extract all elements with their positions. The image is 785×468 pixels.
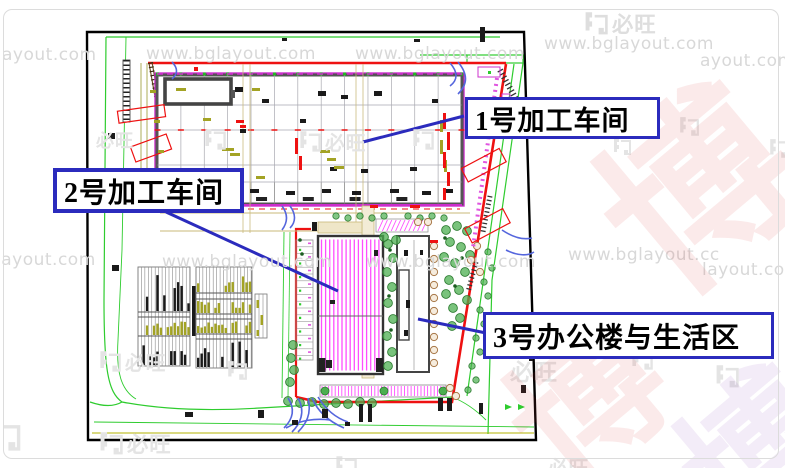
callout-label-workshop-1: 1号加工车间 [465, 97, 660, 139]
bg-logo-watermark: 必旺 [298, 127, 366, 156]
bg-logo-watermark [714, 364, 740, 390]
callout-label-3-text: 3号办公楼与生活区 [493, 316, 740, 356]
bg-logo-watermark: 必旺 [98, 347, 166, 376]
watermark-text: layout.com [0, 250, 96, 270]
bg-logo-watermark: 必旺 [583, 8, 657, 39]
watermark-text: www.bglayout.com [355, 44, 525, 64]
brand-name-watermark: 必旺 [612, 8, 657, 39]
bg-logo-watermark [226, 360, 248, 382]
callout-label-office-3: 3号办公楼与生活区 [483, 312, 774, 359]
watermark-text: www.bglayout.cc [568, 245, 720, 265]
brand-name-watermark: 必旺 [548, 452, 589, 468]
site-plan-drawing [0, 0, 785, 468]
bg-logo-watermark [203, 128, 227, 152]
watermark-text: www.bglayout.com [162, 252, 332, 272]
callout-label-workshop-2: 2号加工车间 [53, 168, 244, 213]
watermark-text: www.bglayout.com [366, 252, 536, 272]
screenshot-page: ayout.com www.bglayout.com www.bglayout.… [0, 0, 785, 468]
watermark-text: layout.com [702, 260, 785, 280]
bg-logo-watermark [612, 137, 632, 157]
brand-name-watermark: 必旺 [127, 428, 172, 459]
brand-name-watermark: 必旺 [96, 127, 134, 153]
brand-name-watermark: 必旺 [125, 347, 166, 376]
watermark-text: ayout.com [700, 51, 785, 71]
bg-logo-watermark: 必旺 [548, 452, 589, 468]
bg-logo-watermark [678, 116, 700, 138]
watermark-text: www.bglayout.com [146, 44, 316, 64]
bg-logo-watermark [0, 420, 22, 454]
bg-logo-watermark [411, 128, 435, 152]
bg-logo-watermark: 必旺 [98, 428, 172, 459]
bg-logo-watermark [768, 138, 785, 160]
callout-label-1-text: 1号加工车间 [475, 99, 630, 138]
bg-logo-watermark [334, 455, 358, 468]
bg-logo-watermark: 必旺 [96, 127, 134, 153]
brand-name-watermark: 必旺 [325, 127, 366, 156]
watermark-text: ayout.com [2, 45, 97, 65]
callout-label-2-text: 2号加工车间 [64, 171, 224, 211]
